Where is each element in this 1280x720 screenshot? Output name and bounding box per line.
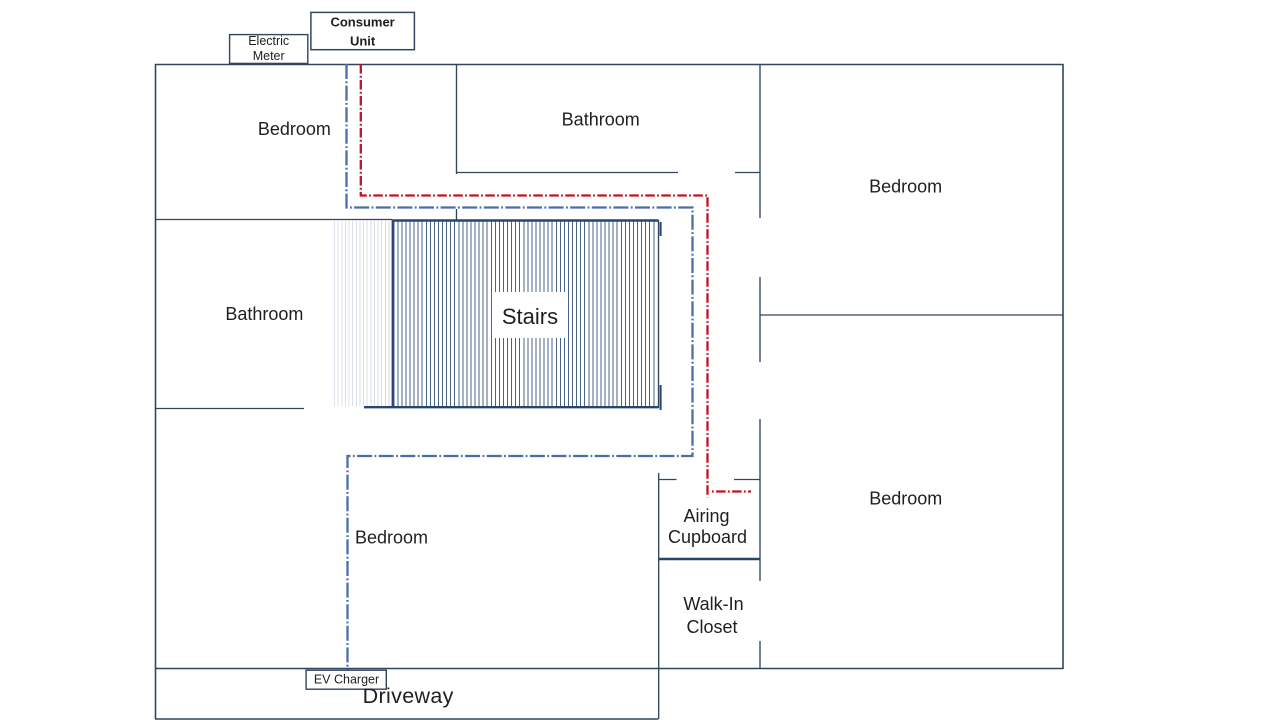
- svg-text:Electric: Electric: [248, 34, 289, 48]
- svg-text:Consumer: Consumer: [330, 14, 394, 29]
- svg-text:Bedroom: Bedroom: [258, 119, 331, 139]
- svg-text:Bedroom: Bedroom: [355, 527, 428, 547]
- svg-text:Bedroom: Bedroom: [869, 489, 942, 509]
- svg-text:Unit: Unit: [350, 34, 376, 49]
- svg-text:Bathroom: Bathroom: [562, 109, 640, 129]
- svg-text:Cupboard: Cupboard: [668, 527, 747, 547]
- svg-text:Airing: Airing: [683, 506, 729, 526]
- svg-text:Stairs: Stairs: [502, 304, 558, 329]
- svg-text:Meter: Meter: [253, 49, 285, 63]
- svg-text:Walk-In: Walk-In: [683, 594, 743, 614]
- svg-text:Bedroom: Bedroom: [869, 176, 942, 196]
- svg-text:Bathroom: Bathroom: [225, 304, 303, 324]
- svg-text:Closet: Closet: [686, 617, 737, 637]
- svg-text:Driveway: Driveway: [363, 684, 454, 708]
